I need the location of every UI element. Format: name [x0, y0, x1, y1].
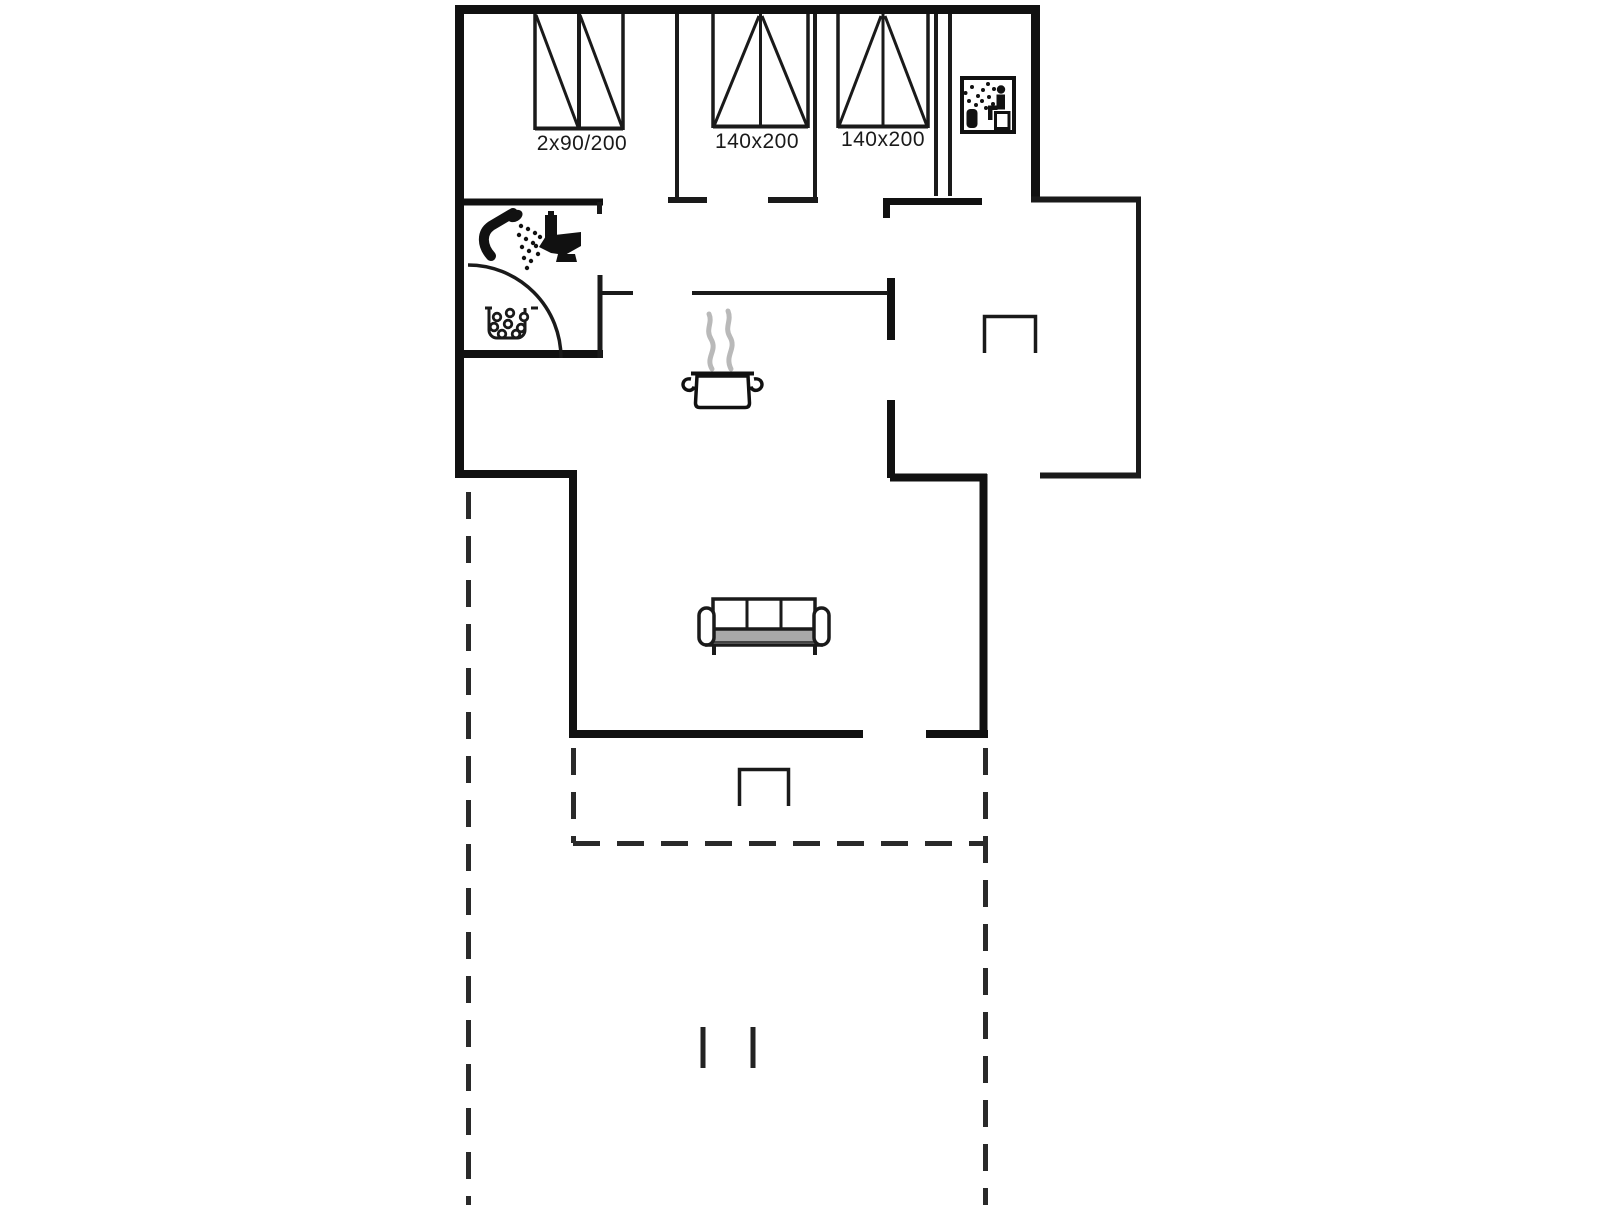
sauna-person-head [997, 85, 1005, 93]
bed3-diagonal-left [839, 16, 881, 126]
sofa-armrest-right [814, 608, 829, 645]
bed-140-right-label: 140x200 [841, 128, 925, 151]
sofa-armrest-left [699, 608, 714, 645]
bed-140-left [713, 14, 808, 128]
sauna-icon [962, 78, 1014, 132]
pot-handle-left [683, 379, 694, 391]
wood-stove-icon [985, 317, 1036, 354]
pot-handle-right [751, 379, 762, 391]
floor-plan-svg: 2x90/200 140x200 140x200 [0, 0, 1606, 1205]
steam-wisp-left [709, 314, 713, 369]
shower-icon [484, 207, 542, 270]
sofa-icon [699, 599, 829, 655]
sauna-person-body [997, 95, 1006, 110]
toilet-icon [539, 211, 581, 262]
walls-annex [1031, 199, 1141, 478]
bed1-diagonal-right [580, 15, 622, 127]
walls-thin [468, 14, 950, 358]
toilet-pedestal [556, 254, 577, 262]
whirlpool-icon [485, 308, 538, 338]
beds [535, 14, 928, 130]
bed-140-right [838, 14, 928, 128]
whirlpool-bubbles [490, 309, 528, 338]
terrace-posts [703, 1027, 753, 1068]
bed-double-single [535, 14, 623, 130]
bed2-diagonal-right [762, 16, 807, 126]
cooking-pot-icon [683, 311, 762, 408]
shower-spray-dots [517, 224, 542, 270]
steam-icon [709, 311, 732, 369]
steam-wisp-right [728, 311, 732, 369]
sofa-backrest [713, 599, 815, 629]
bed3-diagonal-right [885, 16, 927, 126]
bed-labels: 2x90/200 140x200 140x200 [537, 128, 925, 155]
pot-body [696, 376, 750, 408]
bed-140-left-label: 140x200 [715, 130, 799, 153]
bed1-diagonal-left [536, 15, 578, 127]
wood-stove-icon [740, 770, 789, 807]
bed2-diagonal-left [714, 16, 759, 126]
sauna-bench [996, 113, 1010, 129]
sauna-heater [967, 109, 978, 128]
sofa-seat [713, 629, 815, 642]
floor-plan-canvas: 2x90/200 140x200 140x200 [0, 0, 1606, 1205]
bed-double-label: 2x90/200 [537, 132, 627, 155]
